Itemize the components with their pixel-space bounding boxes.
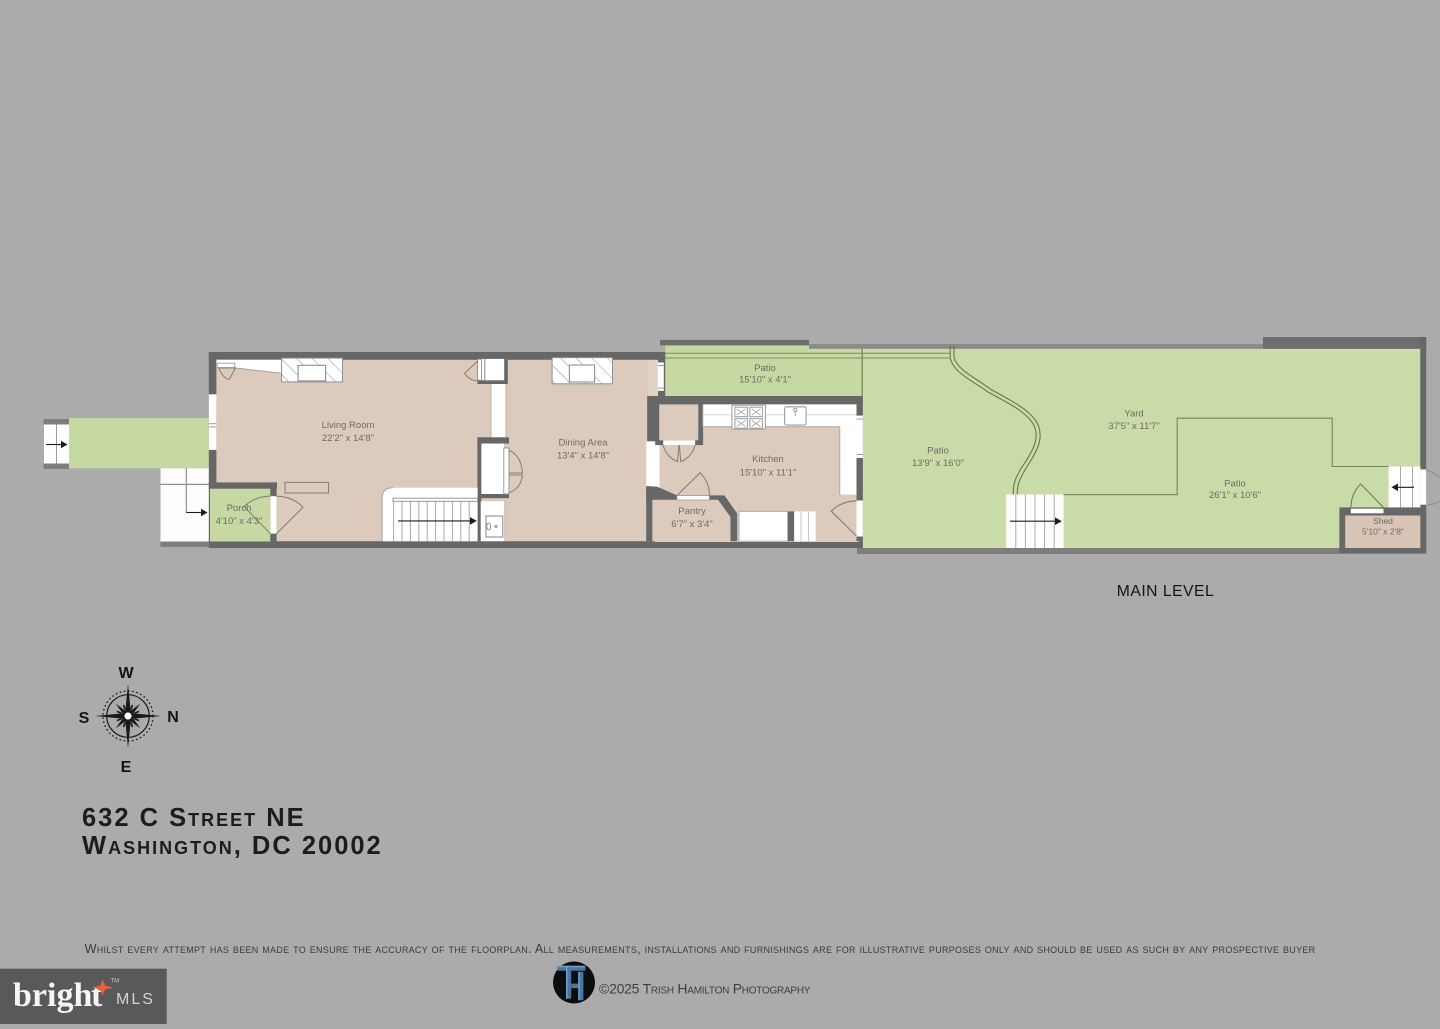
svg-text:W: W bbox=[118, 665, 134, 682]
svg-text:22'2" x 14'8": 22'2" x 14'8" bbox=[322, 433, 374, 444]
svg-text:MAIN LEVEL: MAIN LEVEL bbox=[1117, 583, 1214, 600]
svg-text:MLS: MLS bbox=[116, 991, 155, 1008]
svg-text:Pantry: Pantry bbox=[678, 506, 706, 517]
svg-text:13'9" x 16'0": 13'9" x 16'0" bbox=[912, 458, 964, 469]
svg-text:Patio: Patio bbox=[1224, 479, 1246, 490]
svg-text:632 C Street NE: 632 C Street NE bbox=[82, 804, 306, 832]
svg-text:N: N bbox=[167, 709, 179, 726]
svg-text:Washington, DC 20002: Washington, DC 20002 bbox=[82, 832, 383, 860]
svg-text:Patio: Patio bbox=[754, 363, 776, 374]
svg-text:4'10" x 4'3": 4'10" x 4'3" bbox=[216, 516, 263, 527]
svg-text:Patio: Patio bbox=[927, 446, 949, 457]
svg-text:Dining Area: Dining Area bbox=[558, 438, 608, 449]
svg-text:Living Room: Living Room bbox=[322, 420, 375, 431]
svg-text:©2025 Trish Hamilton Photograp: ©2025 Trish Hamilton Photography bbox=[599, 980, 811, 996]
svg-text:E: E bbox=[121, 759, 132, 776]
svg-text:5'10" x 2'8": 5'10" x 2'8" bbox=[1362, 527, 1404, 537]
svg-text:Whilst every attempt has been: Whilst every attempt has been made to en… bbox=[85, 942, 1316, 956]
svg-text:TM: TM bbox=[111, 979, 120, 985]
svg-text:15'10" x 11'1": 15'10" x 11'1" bbox=[740, 468, 797, 479]
svg-text:13'4" x 14'8": 13'4" x 14'8" bbox=[557, 451, 609, 462]
svg-text:brigh: brigh bbox=[13, 977, 92, 1014]
svg-text:Yard: Yard bbox=[1124, 409, 1143, 420]
svg-text:Shed: Shed bbox=[1373, 516, 1393, 526]
svg-text:37'5" x 11'7": 37'5" x 11'7" bbox=[1108, 421, 1159, 432]
svg-text:6'7" x 3'4": 6'7" x 3'4" bbox=[671, 519, 713, 530]
svg-text:Porch: Porch bbox=[227, 503, 252, 514]
svg-text:S: S bbox=[79, 710, 90, 727]
svg-text:15'10" x 4'1": 15'10" x 4'1" bbox=[739, 375, 791, 386]
svg-text:Kitchen: Kitchen bbox=[752, 454, 784, 465]
svg-text:t: t bbox=[91, 977, 103, 1014]
svg-text:26'1" x 10'6": 26'1" x 10'6" bbox=[1209, 490, 1261, 501]
